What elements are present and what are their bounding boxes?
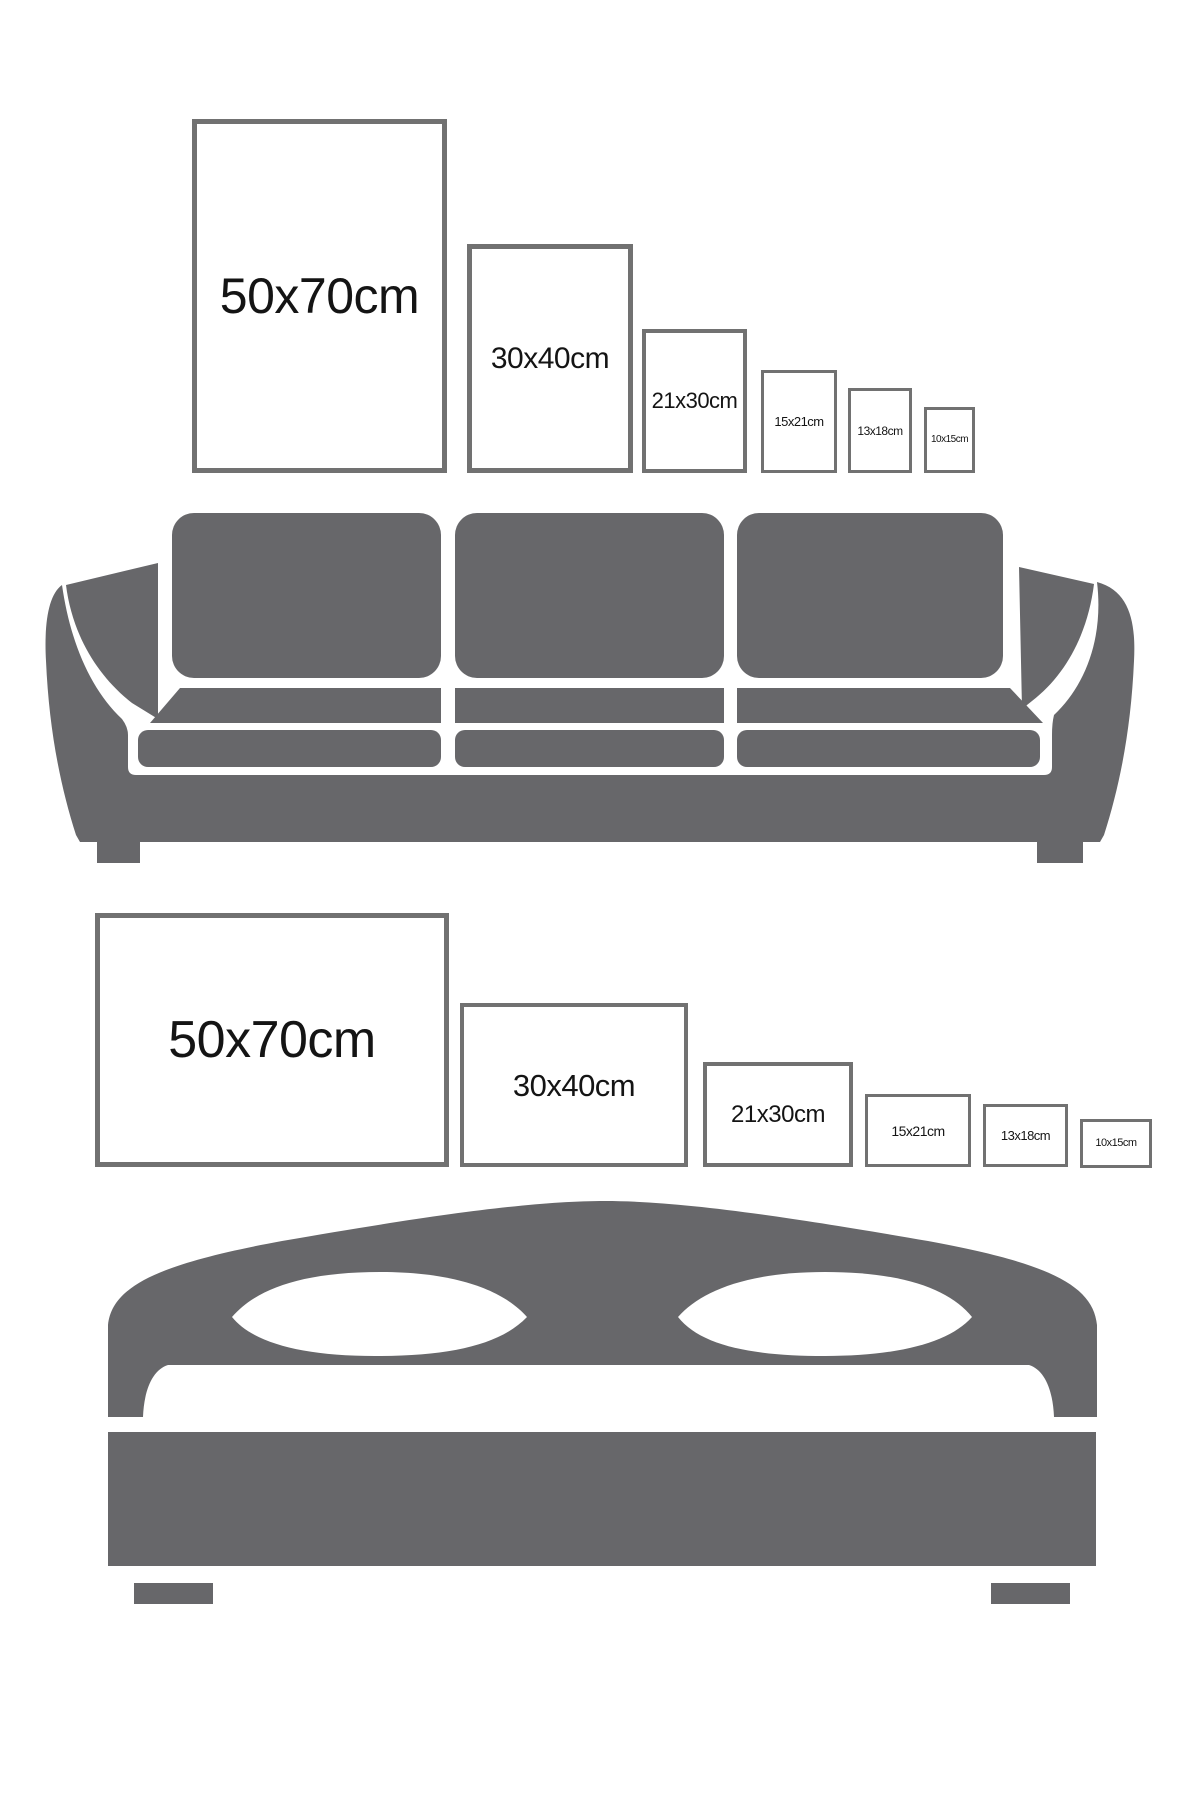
size-frame-21x30-landscape: 21x30cm xyxy=(703,1062,853,1167)
size-frame-50x70-landscape: 50x70cm xyxy=(95,913,449,1167)
size-label: 21x30cm xyxy=(652,390,738,412)
size-frame-21x30-portrait: 21x30cm xyxy=(642,329,747,473)
size-label: 30x40cm xyxy=(513,1070,635,1101)
size-comparison-infographic: 50x70cm 30x40cm 21x30cm 15x21cm 13x18cm … xyxy=(0,0,1200,1800)
size-frame-30x40-landscape: 30x40cm xyxy=(460,1003,688,1167)
size-frame-13x18-portrait: 13x18cm xyxy=(848,388,912,473)
bed-icon xyxy=(100,1195,1110,1610)
size-label: 30x40cm xyxy=(491,344,609,374)
size-frame-15x21-portrait: 15x21cm xyxy=(761,370,837,473)
size-frame-30x40-portrait: 30x40cm xyxy=(467,244,633,473)
size-frame-13x18-landscape: 13x18cm xyxy=(983,1104,1068,1167)
size-label: 15x21cm xyxy=(774,415,823,428)
size-frame-10x15-portrait: 10x15cm xyxy=(924,407,975,473)
size-label: 50x70cm xyxy=(168,1014,376,1066)
size-label: 15x21cm xyxy=(891,1124,944,1138)
size-frame-50x70-portrait: 50x70cm xyxy=(192,119,447,473)
size-label: 21x30cm xyxy=(731,1103,825,1127)
size-label: 50x70cm xyxy=(220,271,419,321)
size-label: 13x18cm xyxy=(1001,1129,1050,1142)
size-label: 10x15cm xyxy=(931,435,968,445)
sofa-icon xyxy=(40,505,1140,875)
size-frame-15x21-landscape: 15x21cm xyxy=(865,1094,971,1167)
size-frame-10x15-landscape: 10x15cm xyxy=(1080,1119,1152,1168)
size-label: 13x18cm xyxy=(857,425,902,437)
size-label: 10x15cm xyxy=(1095,1138,1136,1149)
